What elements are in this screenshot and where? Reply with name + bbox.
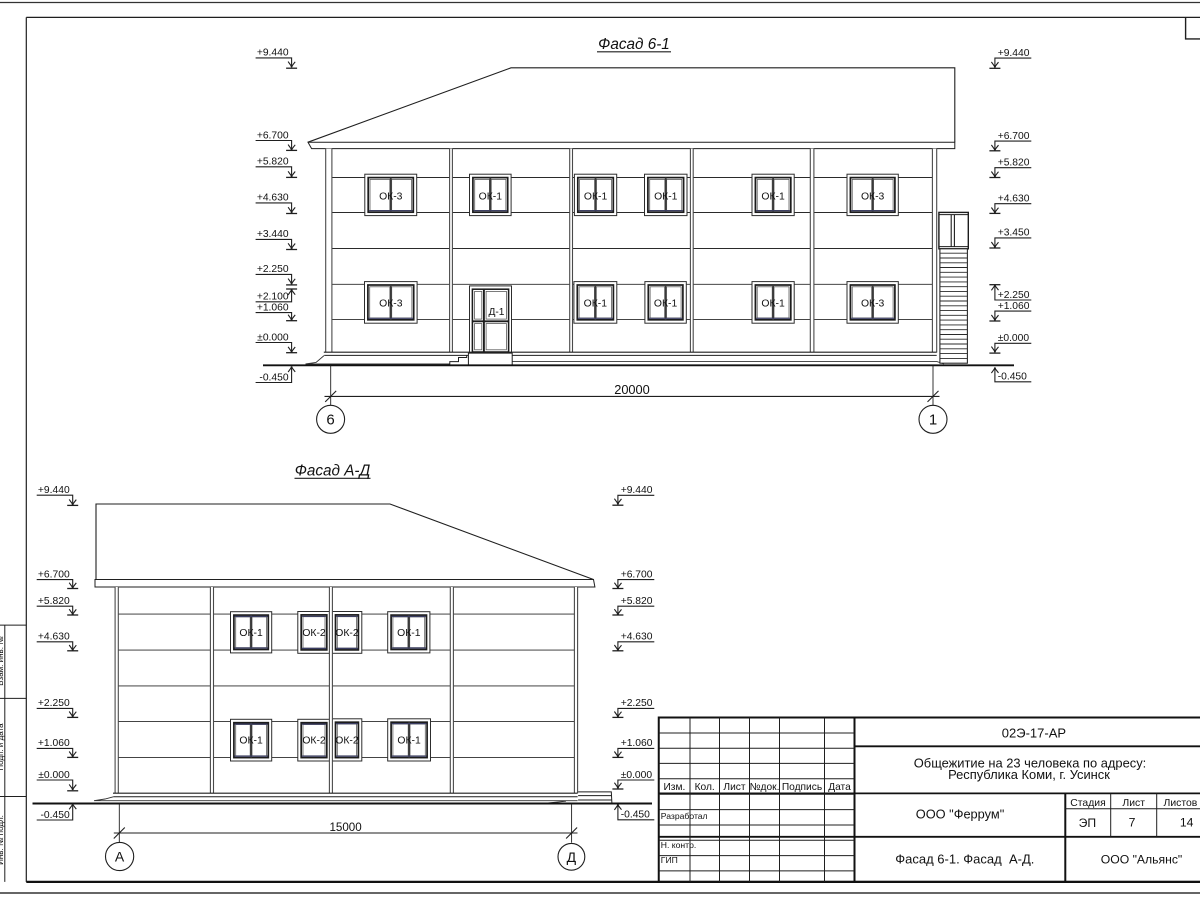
svg-text:ОК-3: ОК-3 [379,191,403,202]
svg-text:Разработал: Разработал [661,811,708,821]
svg-text:ОК-3: ОК-3 [379,298,403,309]
svg-text:Листов: Листов [1164,798,1198,809]
svg-text:-0.450: -0.450 [40,810,69,821]
svg-text:+5.820: +5.820 [998,158,1030,169]
svg-text:ОК-1: ОК-1 [584,191,608,202]
svg-text:+6.700: +6.700 [998,131,1030,142]
svg-text:Взам. инв. №: Взам. инв. № [0,636,5,686]
svg-text:Лист: Лист [1122,798,1145,809]
svg-text:№док.: №док. [750,782,780,793]
svg-text:ОК-2: ОК-2 [302,628,326,639]
svg-text:ОК-1: ОК-1 [397,628,421,639]
svg-text:+6.700: +6.700 [38,569,70,580]
svg-text:15000: 15000 [329,821,361,834]
svg-text:±0.000: ±0.000 [257,332,289,343]
svg-text:Фасад А-Д: Фасад А-Д [295,463,371,480]
svg-text:+2.250: +2.250 [998,290,1030,301]
svg-text:ООО "Феррум": ООО "Феррум" [916,807,1005,822]
svg-text:Фасад 6-1: Фасад 6-1 [598,36,670,53]
svg-text:ОК-1: ОК-1 [479,191,503,202]
svg-text:Изм.: Изм. [663,782,685,793]
svg-text:+9.440: +9.440 [998,48,1030,59]
svg-text:+5.820: +5.820 [38,596,70,607]
svg-text:-0.450: -0.450 [259,372,288,383]
svg-text:1: 1 [929,412,937,429]
svg-text:+1.060: +1.060 [38,738,70,749]
svg-text:Д-1: Д-1 [489,307,505,318]
svg-text:ОК-1: ОК-1 [761,191,785,202]
svg-text:+1.060: +1.060 [257,302,289,313]
svg-text:ОК-2: ОК-2 [302,735,326,746]
svg-text:+2.100: +2.100 [257,292,289,303]
svg-text:ООО "Альянс": ООО "Альянс" [1101,852,1183,866]
svg-text:+2.250: +2.250 [257,264,289,275]
svg-text:ГИП: ГИП [661,855,678,865]
svg-text:ОК-3: ОК-3 [861,191,885,202]
svg-text:Дата: Дата [828,782,851,793]
svg-text:Подп. и дата: Подп. и дата [0,723,5,771]
svg-text:±0.000: ±0.000 [998,333,1030,344]
svg-text:Лист: Лист [723,782,745,793]
svg-text:+2.250: +2.250 [621,698,653,709]
svg-text:ОК-1: ОК-1 [654,191,678,202]
svg-text:ОК-1: ОК-1 [239,628,263,639]
svg-text:+2.250: +2.250 [38,698,70,709]
svg-text:+9.440: +9.440 [38,485,70,496]
svg-text:6: 6 [326,412,334,429]
svg-text:7: 7 [1129,816,1136,830]
svg-text:+4.630: +4.630 [257,193,289,204]
svg-text:ОК-1: ОК-1 [761,298,785,309]
svg-text:А: А [115,849,125,865]
svg-text:ОК-2: ОК-2 [335,628,359,639]
svg-text:Подпись: Подпись [782,782,822,793]
svg-text:+5.820: +5.820 [621,596,653,607]
svg-text:Кол.: Кол. [695,782,715,793]
svg-text:+4.630: +4.630 [621,632,653,643]
svg-text:Республика Коми, г. Усинск: Республика Коми, г. Усинск [948,767,1110,782]
svg-text:+3.440: +3.440 [257,229,289,240]
svg-text:ОК-3: ОК-3 [861,298,885,309]
svg-text:20000: 20000 [614,382,650,397]
svg-text:±0.000: ±0.000 [38,770,70,781]
svg-text:+1.060: +1.060 [998,301,1030,312]
svg-text:+4.630: +4.630 [998,194,1030,205]
svg-text:ОК-1: ОК-1 [654,298,678,309]
svg-text:Инв. № подл.: Инв. № подл. [0,815,5,865]
svg-text:02Э-17-АР: 02Э-17-АР [1002,725,1066,740]
svg-text:14: 14 [1180,816,1194,830]
svg-text:+1.060: +1.060 [621,738,653,749]
svg-text:+3.450: +3.450 [998,228,1030,239]
svg-text:ОК-1: ОК-1 [397,735,421,746]
svg-text:ОК-2: ОК-2 [335,735,359,746]
svg-text:Н. контр.: Н. контр. [661,840,696,850]
svg-text:+5.820: +5.820 [257,157,289,168]
svg-text:Стадия: Стадия [1070,798,1105,809]
svg-text:ЭП: ЭП [1079,816,1097,830]
svg-text:+9.440: +9.440 [257,48,289,59]
svg-text:+6.700: +6.700 [257,130,289,141]
svg-text:ОК-1: ОК-1 [584,298,608,309]
svg-text:±0.000: ±0.000 [621,770,653,781]
svg-text:+6.700: +6.700 [621,569,653,580]
svg-text:Д: Д [567,849,577,865]
svg-text:ОК-1: ОК-1 [239,735,263,746]
svg-text:-0.450: -0.450 [621,810,650,821]
svg-text:+4.630: +4.630 [38,632,70,643]
svg-text:Фасад 6-1. Фасад А-Д.: Фасад 6-1. Фасад А-Д. [895,851,1034,866]
svg-text:+9.440: +9.440 [621,485,653,496]
svg-text:-0.450: -0.450 [998,372,1027,383]
